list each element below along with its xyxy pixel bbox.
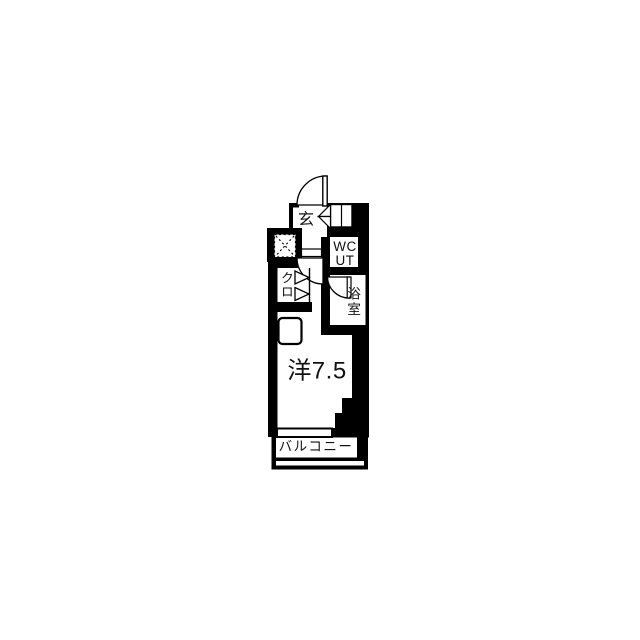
wall-right-main <box>352 335 369 400</box>
balcony-railing-bottom-line <box>272 466 369 470</box>
balcony-railing-top-line <box>272 458 369 462</box>
wall-wc-bottom <box>321 267 369 275</box>
bathroom-room-label: 浴室 <box>345 287 359 318</box>
wc-label: WC <box>333 240 357 254</box>
floor-plan-page: 玄 WC UT 浴室 クロ 洋7.5 バルコニー <box>0 0 640 640</box>
wall-bath-bottom <box>321 325 369 335</box>
floor-plan-drawing <box>0 0 640 640</box>
wall-left-main <box>268 261 278 437</box>
wall-bath-right-thin <box>366 275 370 327</box>
entrance-door-leaf <box>323 176 327 206</box>
pillar-step-2 <box>335 413 369 428</box>
sink-fixture <box>279 318 302 344</box>
pillar-step-3 <box>332 428 369 438</box>
entrance-door-arc <box>297 176 326 205</box>
balcony-wall-left <box>272 437 277 470</box>
balcony-wall-right <box>357 437 368 458</box>
balcony-railing-right-post <box>364 458 368 470</box>
wc-ut-room-label: WC UT <box>333 240 357 268</box>
cabinet-door-swing-icon-bottom <box>319 217 331 229</box>
balcony-window <box>277 429 332 438</box>
balcony-label: バルコニー <box>279 440 354 454</box>
pillar-step-1 <box>342 398 369 413</box>
entrance-room-label: 玄 <box>298 213 314 230</box>
hall-doorway-opening <box>302 249 322 257</box>
wall-closet-bottom <box>268 302 312 312</box>
closet-folding-door-icon-2 <box>295 288 309 301</box>
closet-room-label: クロ <box>279 271 293 299</box>
main-room-label: 洋7.5 <box>287 358 346 383</box>
ut-label: UT <box>333 254 357 268</box>
